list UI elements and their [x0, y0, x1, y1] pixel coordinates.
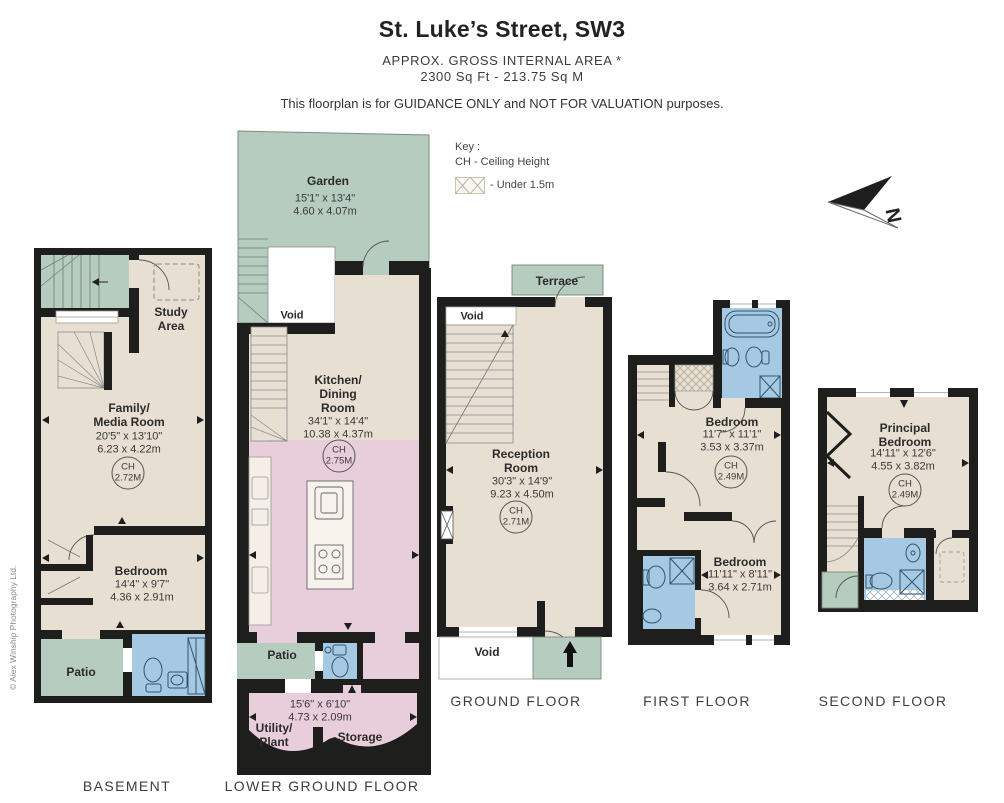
first-shower-room-area [643, 556, 695, 629]
under-height-strip [866, 590, 924, 600]
ground-stairs [446, 325, 513, 443]
key-under-label: - Under 1.5m [490, 178, 554, 193]
first-stairs [637, 365, 675, 407]
ceiling-height-badge-second: CH2.49M [889, 474, 922, 507]
copyright-watermark: © Alex Winship Photography Ltd. [8, 566, 18, 690]
north-arrow-icon: N [822, 172, 922, 236]
floor-title-second: SECOND FLOOR [819, 693, 948, 709]
lgf-stairs [251, 327, 287, 441]
room-label-void-ground-bottom: Void [474, 645, 499, 659]
room-label-void-ground-top: Void [460, 311, 483, 324]
under-height-area [675, 365, 713, 391]
kitchen-island [307, 481, 353, 589]
room-label-storage: Storage [338, 730, 383, 744]
roof-terrace-area [822, 572, 858, 608]
basement-inner-stairs [58, 332, 112, 390]
room-label-lgf-patio: Patio [267, 648, 296, 662]
room-dimensions-basement-bedroom: 14'4" x 9'7"4.36 x 2.91m [110, 566, 174, 619]
floor-title-ground: GROUND FLOOR [450, 693, 581, 709]
ceiling-height-badge-first: CH2.49M [715, 456, 748, 489]
lgf-wc-area [323, 643, 357, 679]
ceiling-height-badge-basement: CH2.72M [112, 457, 145, 490]
gross-area-values: 2300 Sq Ft - 213.75 Sq M [420, 69, 583, 84]
room-label-void-lgf: Void [280, 310, 303, 323]
room-label-utility-plant: Utility/ Plant [256, 721, 293, 749]
gross-area-label: APPROX. GROSS INTERNAL AREA * [382, 53, 621, 68]
floor-title-first: FIRST FLOOR [643, 693, 751, 709]
key-legend: Key : CH - Ceiling Height - Under 1.5m [455, 140, 554, 194]
room-label-study-area: Study Area [154, 305, 187, 333]
room-label-basement-patio: Patio [66, 665, 95, 679]
under-1-5m-hatch-icon [455, 177, 485, 194]
first-bathroom-area [722, 308, 782, 400]
page-title: St. Luke’s Street, SW3 [379, 16, 625, 43]
room-dimensions-first-bedroom-back: 11'11" x 8'11"3.64 x 2.71m [708, 556, 772, 609]
ceiling-height-badge-lgf: CH2.75M [323, 440, 356, 473]
room-dimensions-garden: 15'1" x 13'4"4.60 x 4.07m [293, 180, 357, 233]
north-label: N [880, 206, 905, 225]
floor-title-basement: BASEMENT [83, 778, 171, 794]
ceiling-height-badge-ground: CH2.71M [500, 501, 533, 534]
key-ceiling-height-note: CH - Ceiling Height [455, 155, 554, 170]
disclaimer-text: This floorplan is for GUIDANCE ONLY and … [280, 96, 723, 111]
floor-title-lower-ground: LOWER GROUND FLOOR [225, 778, 420, 794]
room-label-terrace: Terrace [536, 274, 578, 288]
key-title: Key : [455, 140, 554, 155]
floorplan-page: St. Luke’s Street, SW3 APPROX. GROSS INT… [0, 0, 1004, 803]
